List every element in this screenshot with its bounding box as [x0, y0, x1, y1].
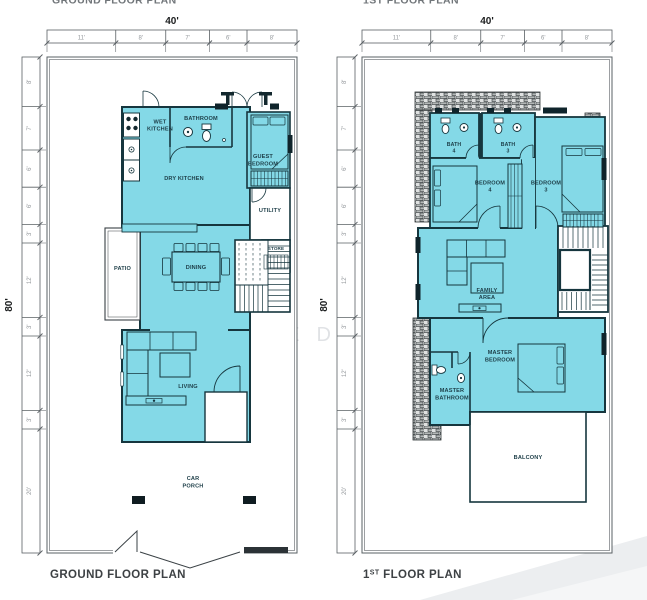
- ground-top-dim: 6': [226, 36, 230, 42]
- first-floor-plan: BATH 4 BATH 3 BEDROOM 4 BEDROOM 3 FAMILY…: [362, 57, 612, 553]
- ground-floor-plan: WET KITCHEN BATHROOM DRY KITCHEN GUEST B…: [47, 57, 297, 568]
- room-label-dry-kitchen: DRY KITCHEN: [164, 176, 204, 182]
- bedroom3-bed: [562, 146, 603, 212]
- first-left-dim: 3': [342, 417, 348, 421]
- ground-left-dim: 3': [27, 231, 33, 235]
- first-left-dimension-bar: [337, 55, 361, 556]
- room-label-master-bathroom: BATHROOM: [435, 396, 469, 402]
- room-label-bedroom3: BEDROOM: [531, 181, 561, 187]
- first-total-width: 40': [480, 16, 494, 27]
- ground-left-dim: 20': [27, 487, 33, 495]
- entry-porch: [205, 392, 247, 442]
- cropped-title-ground: GROUND FLOOR PLAN: [52, 0, 177, 7]
- first-top-dim: 11': [393, 36, 400, 42]
- ground-left-dim: 12': [27, 369, 33, 377]
- family-sofa: [447, 240, 505, 293]
- room-label-guest-bedroom: GUEST: [253, 154, 273, 160]
- room-label-master-bedroom: BEDROOM: [485, 358, 515, 364]
- floor-plan-sheet: GROUND FLOOR PLAN 1ST FLOOR PLAN BYD RED…: [0, 0, 647, 600]
- room-label-dining: DINING: [186, 265, 206, 271]
- bedroom4-bed: [433, 166, 477, 222]
- ground-floor-title: GROUND FLOOR PLAN: [50, 569, 186, 581]
- room-label-car-porch: CAR: [187, 476, 200, 482]
- tv-console: [126, 396, 186, 405]
- first-top-dim: 8': [585, 36, 589, 42]
- ground-total-width: 40': [165, 16, 179, 27]
- room-label-bedroom3: 3: [544, 188, 547, 194]
- ground-top-dim: 11': [78, 36, 85, 42]
- first-left-dim: 20': [342, 487, 348, 495]
- room-label-car-porch: PORCH: [183, 484, 204, 490]
- ground-left-dim: 3': [27, 324, 33, 328]
- room-label-bathroom: BATHROOM: [184, 116, 218, 122]
- room-label-guest-bedroom: BEDROOM: [248, 162, 278, 168]
- guest-wardrobe: [251, 171, 288, 186]
- cropped-title-first: 1ST FLOOR PLAN: [363, 0, 459, 7]
- ground-left-dim: 3': [27, 417, 33, 421]
- room-label-store: STORE: [268, 246, 285, 251]
- room-label-bath4: BATH: [447, 142, 462, 148]
- first-left-dim: 3': [342, 231, 348, 235]
- first-top-dim: 7': [500, 36, 504, 42]
- first-floor-title: 1ST FLOOR PLAN: [363, 569, 462, 581]
- room-label-patio: PATIO: [114, 266, 132, 272]
- room-label-master-bathroom: MASTER: [440, 388, 465, 394]
- ground-left-dimension-bar: [22, 55, 46, 556]
- room-label-bedroom4: BEDROOM: [475, 181, 505, 187]
- room-label-utility: UTILITY: [259, 208, 281, 214]
- master-bed: [518, 344, 565, 392]
- ground-top-dim: 8': [270, 36, 274, 42]
- room-label-master-bedroom: MASTER: [488, 350, 513, 356]
- stove-icon: [124, 113, 140, 137]
- first-left-dim: 3': [342, 324, 348, 328]
- ground-top-dim: 8': [139, 36, 143, 42]
- ground-left-dim: 8': [27, 80, 33, 84]
- first-left-dim: 8': [342, 80, 348, 84]
- room-label-balcony: BALCONY: [514, 455, 543, 461]
- wardrobe-divider: [508, 164, 522, 228]
- first-floor-title-sup: ST: [370, 570, 380, 577]
- kitchen-counter: [122, 224, 197, 232]
- utility-room: [250, 188, 290, 240]
- patio-bay: [105, 228, 140, 320]
- ground-left-dim: 6': [27, 166, 33, 170]
- kitchen-sink-icon: [124, 139, 140, 181]
- room-label-wet-kitchen: WET: [154, 120, 167, 126]
- room-label-living: LIVING: [178, 384, 198, 390]
- first-top-dim: 6': [541, 36, 545, 42]
- room-label-bath4: 4: [452, 149, 455, 155]
- first-left-dim: 7': [342, 126, 348, 130]
- ground-total-height: 80': [4, 298, 15, 312]
- room-label-family-area: AREA: [479, 295, 495, 301]
- first-total-height: 80': [319, 298, 330, 312]
- family-tv-console: [459, 304, 501, 312]
- bedroom3-wardrobe: [563, 214, 603, 227]
- first-top-dim: 8': [454, 36, 458, 42]
- room-label-bath3: 3: [506, 149, 509, 155]
- ground-left-dim: 7': [27, 126, 33, 130]
- ground-left-dim: 6': [27, 204, 33, 208]
- room-label-wet-kitchen: KITCHEN: [147, 127, 173, 133]
- room-label-bath3: BATH: [501, 142, 516, 148]
- first-left-dim: 12': [342, 369, 348, 377]
- ground-top-dim: 7': [185, 36, 189, 42]
- first-left-dim: 6': [342, 204, 348, 208]
- first-left-dim: 12': [342, 276, 348, 284]
- first-left-dim: 6': [342, 166, 348, 170]
- room-label-family-area: FAMILY: [477, 288, 498, 294]
- first-floor-title-rest: FLOOR PLAN: [380, 569, 462, 581]
- ground-left-dim: 12': [27, 276, 33, 284]
